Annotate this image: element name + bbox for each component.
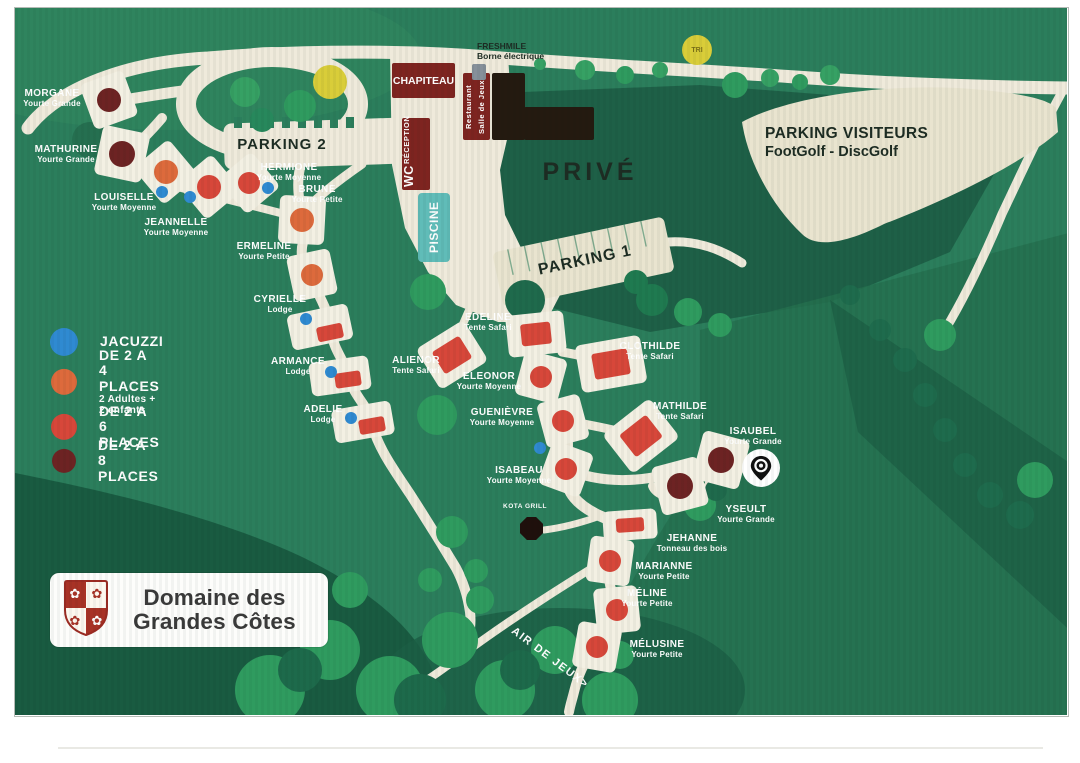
reception-wc-building: RÉCEPTION WC: [402, 118, 430, 190]
margin-left: [0, 0, 15, 763]
scanned-map-page: CHAPITEAU Restaurant Salle de Jeux RÉCEP…: [0, 0, 1080, 763]
site-name: MARIANNE: [589, 561, 739, 572]
capacity-marker: [708, 447, 734, 473]
site-name: MÉLINE: [572, 588, 722, 599]
site-type: Yourte Moyenne: [214, 173, 364, 182]
site-label: MORGANE Yourte Grande: [0, 88, 127, 108]
site-name: HERMIONE: [214, 162, 364, 173]
piscine-building: PISCINE: [418, 193, 450, 262]
site-name: ISABEAU: [444, 465, 594, 476]
freshmile-label: FRESHMILEBorne électrique: [477, 42, 544, 62]
prive-building-wing1: [492, 73, 525, 140]
salle-de-jeux-label: Salle de Jeux: [477, 73, 486, 140]
site-type: Lodge: [248, 415, 398, 424]
site-label: GUENIÈVRE Yourte Moyenne: [427, 407, 577, 427]
site-type: Yourte Grande: [678, 437, 828, 446]
site-type: Yourte Petite: [189, 252, 339, 261]
site-type: Yourte Grande: [671, 515, 821, 524]
site-name: MORGANE: [0, 88, 127, 99]
site-type: Tente Safari: [575, 352, 725, 361]
site-type: Yourte Moyenne: [427, 418, 577, 427]
site-type: Yourte Moyenne: [444, 476, 594, 485]
restaurant-building: Restaurant Salle de Jeux: [463, 73, 490, 140]
site-label: MATHILDE Tente Safari: [605, 401, 755, 421]
site-name: MATHILDE: [605, 401, 755, 412]
kota-grill-hut: [520, 517, 543, 540]
site-label: JEANNELLE Yourte Moyenne: [101, 217, 251, 237]
tri-label: TRI: [691, 47, 702, 54]
yellow-badge: [313, 65, 347, 99]
coat-of-arms-icon: ✿ ✿ ✿ ✿: [63, 579, 109, 642]
site-name: MÉLUSINE: [582, 639, 732, 650]
freshmile-charger-box: [472, 64, 486, 80]
capacity-marker: [667, 473, 693, 499]
capacity-marker: [616, 517, 645, 533]
svg-text:✿: ✿: [70, 586, 81, 601]
site-name: JEANNELLE: [101, 217, 251, 228]
site-type: Yourte Petite: [242, 195, 392, 204]
site-name: JEHANNE: [617, 533, 767, 544]
legend-color-dot: [51, 414, 77, 440]
site-type: Yourte Moyenne: [414, 382, 564, 391]
jacuzzi-dot: [534, 442, 546, 454]
wc-label: WC: [402, 164, 430, 188]
logo-title: Domaine desGrandes Côtes: [109, 586, 328, 635]
site-name: ERMELINE: [189, 241, 339, 252]
site-name: GUENIÈVRE: [427, 407, 577, 418]
site-label: CYRIELLE Lodge: [205, 294, 355, 314]
site-label: JEHANNE Tonneau des bois: [617, 533, 767, 553]
reception-label: RÉCEPTION: [402, 120, 430, 164]
site-label: ADELIE Lodge: [248, 404, 398, 424]
site-label: CLOTHILDE Tente Safari: [575, 341, 725, 361]
prive-label: PRIVÉ: [530, 158, 650, 187]
site-name: ALIENOR: [341, 355, 491, 366]
margin-top: [0, 0, 1080, 8]
site-name: BRUNE: [242, 184, 392, 195]
site-label: MATHURINE Yourte Grande: [0, 144, 141, 164]
legend-color-dot: [51, 369, 77, 395]
site-name: CLOTHILDE: [575, 341, 725, 352]
campsite-map: CHAPITEAU Restaurant Salle de Jeux RÉCEP…: [0, 0, 1080, 763]
margin-bottom: [0, 715, 1080, 763]
legend-color-dot: [52, 449, 76, 473]
legend-item: DE 2 A 8 PLACES: [52, 438, 158, 484]
parking-visiteurs-label: PARKING VISITEURS FootGolf - DiscGolf: [765, 124, 928, 162]
legend-label: DE 2 A 8 PLACES: [98, 438, 158, 484]
location-pin-icon: [742, 449, 780, 487]
site-name: CYRIELLE: [205, 294, 355, 305]
margin-right: [1067, 0, 1080, 763]
capacity-marker: [301, 264, 323, 286]
site-label: ELEONOR Yourte Moyenne: [414, 371, 564, 391]
site-type: Yourte Petite: [589, 572, 739, 581]
site-type: Lodge: [205, 305, 355, 314]
site-type: Tente Safari: [605, 412, 755, 421]
site-label: ISABEAU Yourte Moyenne: [444, 465, 594, 485]
site-name: EDELINE: [413, 312, 563, 323]
site-type: Tonneau des bois: [617, 544, 767, 553]
site-label: ISAUBEL Yourte Grande: [678, 426, 828, 446]
site-type: Yourte Grande: [0, 155, 141, 164]
logo-card: ✿ ✿ ✿ ✿ Domaine desGrandes Côtes: [50, 573, 328, 647]
site-name: ELEONOR: [414, 371, 564, 382]
site-label: MÉLINE Yourte Petite: [572, 588, 722, 608]
site-label: MARIANNE Yourte Petite: [589, 561, 739, 581]
site-label: ERMELINE Yourte Petite: [189, 241, 339, 261]
parking2-label: PARKING 2: [222, 136, 342, 153]
site-type: Yourte Moyenne: [101, 228, 251, 237]
legend-text: DE 2 A 8 PLACES: [98, 438, 158, 484]
scan-artifact-line: [58, 747, 1043, 749]
site-type: Yourte Grande: [0, 99, 127, 108]
capacity-marker: [154, 160, 178, 184]
restaurant-label: Restaurant: [464, 73, 473, 140]
site-name: ADELIE: [248, 404, 398, 415]
piscine-label: PISCINE: [427, 193, 441, 262]
site-name: YSEULT: [671, 504, 821, 515]
site-label: HERMIONE Yourte Moyenne: [214, 162, 364, 182]
legend-label: DE 2 A 4 PLACES: [99, 348, 159, 394]
site-name: ISAUBEL: [678, 426, 828, 437]
site-label: BRUNE Yourte Petite: [242, 184, 392, 204]
site-label: EDELINE Tente Safari: [413, 312, 563, 332]
tri-badge: TRI: [682, 35, 712, 65]
chapiteau-building: CHAPITEAU: [392, 63, 455, 98]
chapiteau-label: CHAPITEAU: [393, 75, 454, 87]
kota-grill-label: KOTA GRILL: [485, 503, 565, 510]
site-label: MÉLUSINE Yourte Petite: [582, 639, 732, 659]
jacuzzi-dot: [300, 313, 312, 325]
site-label: LOUISELLE Yourte Moyenne: [49, 192, 199, 212]
site-type: Yourte Moyenne: [49, 203, 199, 212]
site-name: MATHURINE: [0, 144, 141, 155]
svg-text:✿: ✿: [92, 586, 103, 601]
site-type: Tente Safari: [413, 323, 563, 332]
site-type: Yourte Petite: [582, 650, 732, 659]
capacity-marker: [290, 208, 314, 232]
prive-building-wing2: [524, 107, 594, 140]
site-label: YSEULT Yourte Grande: [671, 504, 821, 524]
site-type: Yourte Petite: [572, 599, 722, 608]
site-name: LOUISELLE: [49, 192, 199, 203]
